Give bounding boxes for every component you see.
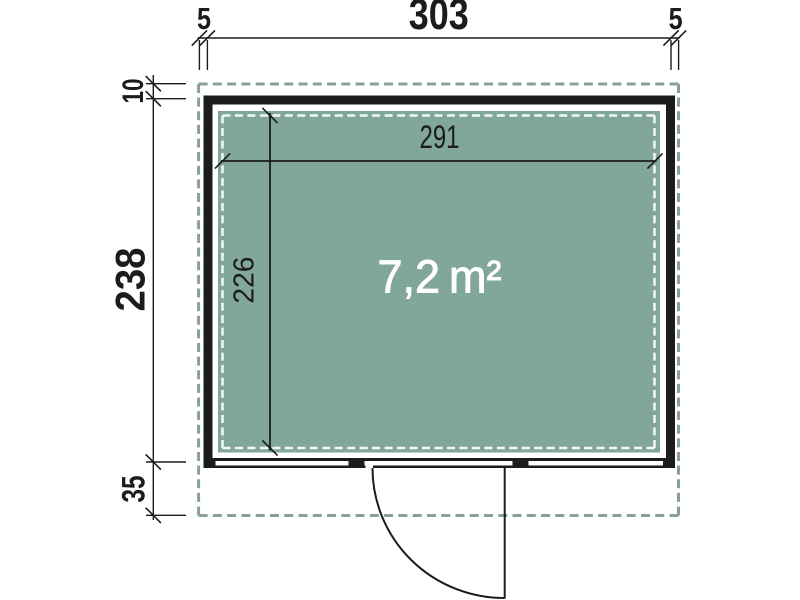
svg-text:291: 291: [420, 119, 460, 155]
svg-text:10: 10: [117, 79, 150, 104]
svg-text:5: 5: [669, 1, 683, 36]
svg-text:35: 35: [115, 476, 151, 503]
svg-text:5: 5: [197, 1, 211, 36]
svg-text:303: 303: [409, 0, 469, 39]
svg-text:7,2 m²: 7,2 m²: [378, 251, 502, 303]
svg-text:238: 238: [107, 248, 154, 312]
svg-text:226: 226: [228, 257, 260, 304]
